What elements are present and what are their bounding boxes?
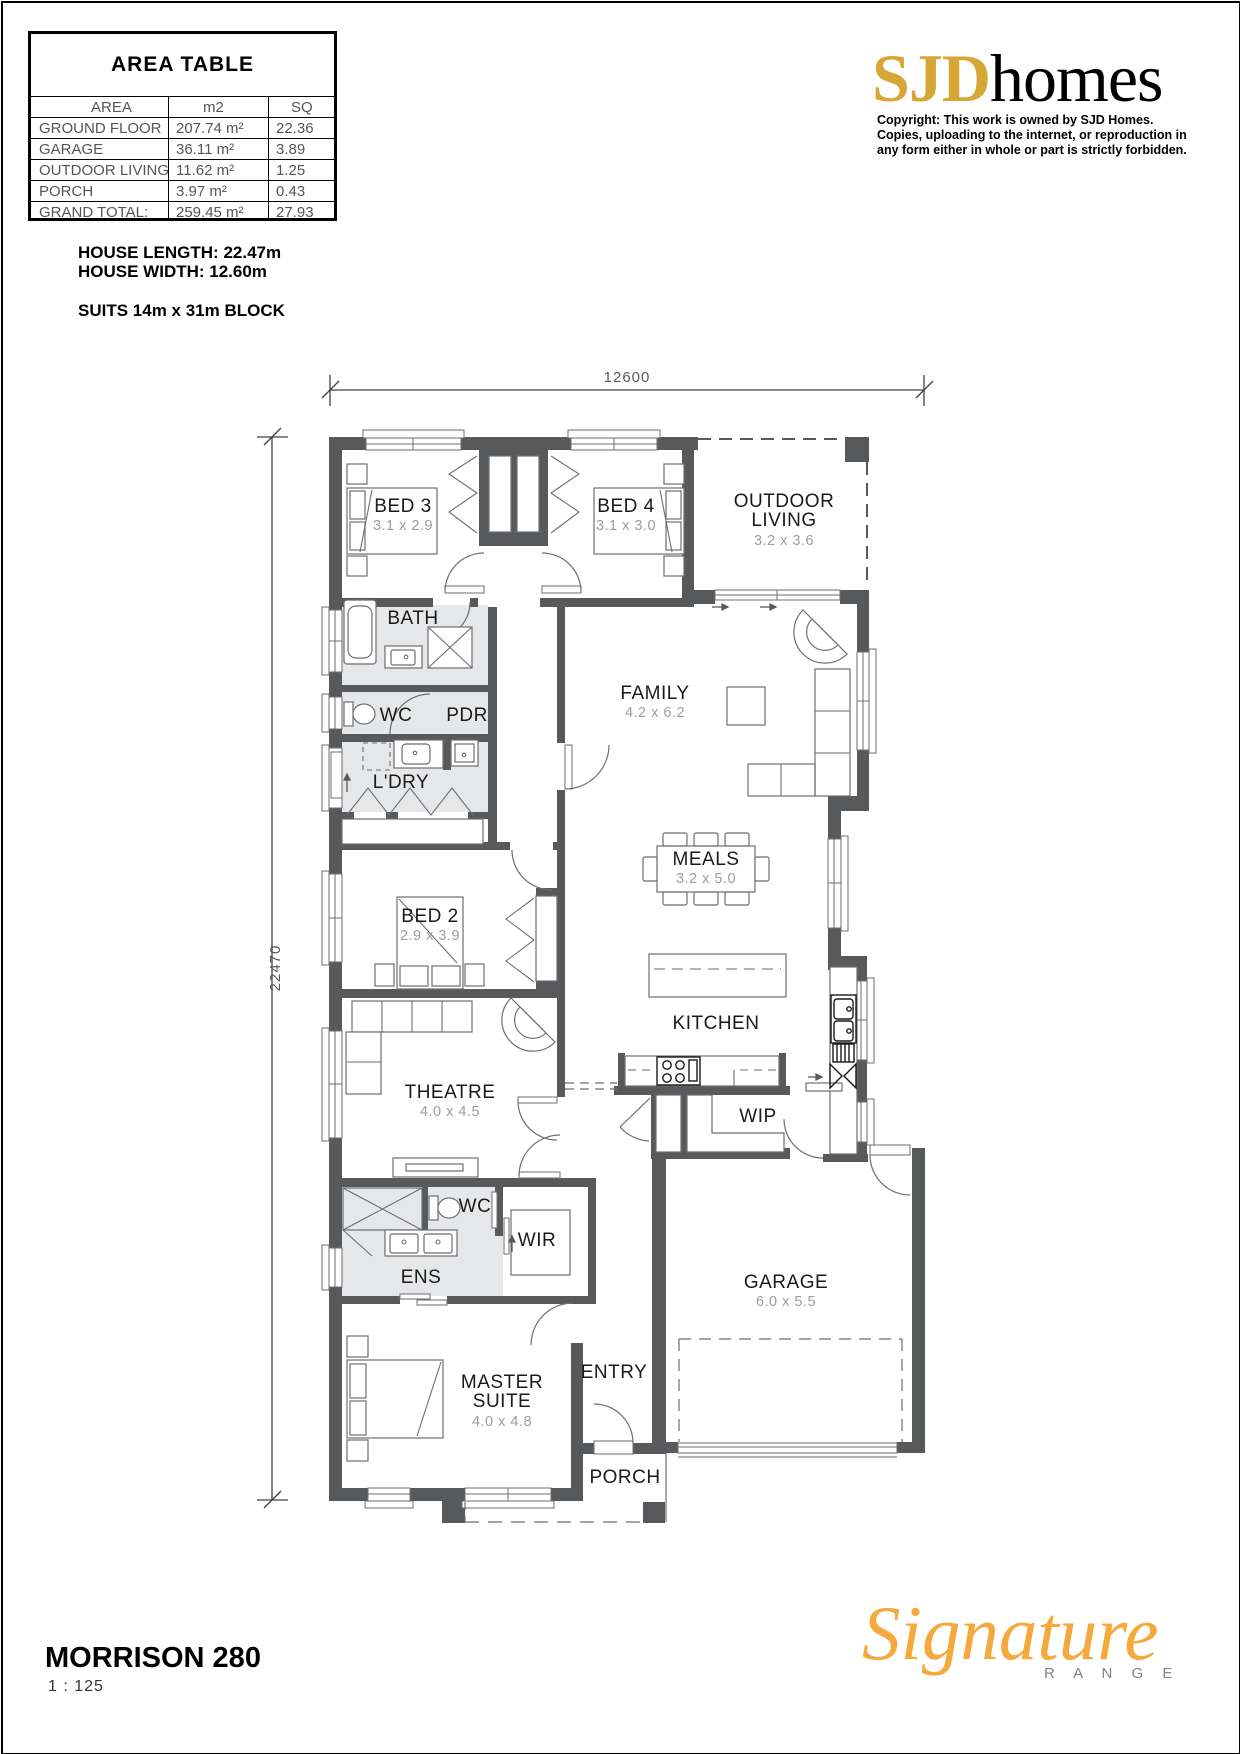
svg-text:6.0 x 5.5: 6.0 x 5.5	[756, 1294, 816, 1310]
svg-text:THEATRE: THEATRE	[405, 1082, 496, 1103]
svg-text:BED 2: BED 2	[401, 906, 458, 927]
svg-text:3.2 x 5.0: 3.2 x 5.0	[676, 871, 736, 887]
svg-text:12600: 12600	[604, 369, 651, 386]
svg-text:PDR: PDR	[446, 705, 488, 726]
svg-text:BATH: BATH	[387, 608, 438, 629]
svg-text:3.2 x 3.6: 3.2 x 3.6	[754, 533, 814, 549]
svg-text:4.0 x 4.8: 4.0 x 4.8	[472, 1414, 532, 1430]
svg-text:22470: 22470	[267, 945, 284, 992]
svg-text:BED 4: BED 4	[597, 496, 654, 517]
svg-text:WIP: WIP	[739, 1106, 776, 1127]
svg-text:4.2 x 6.2: 4.2 x 6.2	[625, 705, 685, 721]
svg-text:ENS: ENS	[401, 1267, 442, 1288]
svg-text:OUTDOOR: OUTDOOR	[734, 491, 835, 512]
svg-text:GARAGE: GARAGE	[744, 1272, 828, 1293]
svg-text:MEALS: MEALS	[673, 849, 740, 870]
svg-text:ENTRY: ENTRY	[581, 1362, 648, 1383]
svg-text:SUITE: SUITE	[473, 1391, 531, 1412]
svg-text:WIR: WIR	[518, 1230, 556, 1251]
svg-text:BED 3: BED 3	[374, 496, 431, 517]
svg-text:2.9 x 3.9: 2.9 x 3.9	[400, 928, 460, 944]
svg-text:WC: WC	[380, 705, 413, 726]
svg-text:PORCH: PORCH	[589, 1467, 660, 1488]
svg-text:L'DRY: L'DRY	[373, 772, 429, 793]
svg-text:4.0 x 4.5: 4.0 x 4.5	[420, 1104, 480, 1120]
svg-text:WC: WC	[459, 1196, 492, 1217]
svg-text:LIVING: LIVING	[751, 510, 816, 531]
svg-text:3.1 x 3.0: 3.1 x 3.0	[596, 518, 656, 534]
svg-text:MASTER: MASTER	[461, 1372, 543, 1393]
svg-text:FAMILY: FAMILY	[620, 683, 689, 704]
svg-text:KITCHEN: KITCHEN	[673, 1013, 760, 1034]
svg-text:3.1 x 2.9: 3.1 x 2.9	[373, 518, 433, 534]
